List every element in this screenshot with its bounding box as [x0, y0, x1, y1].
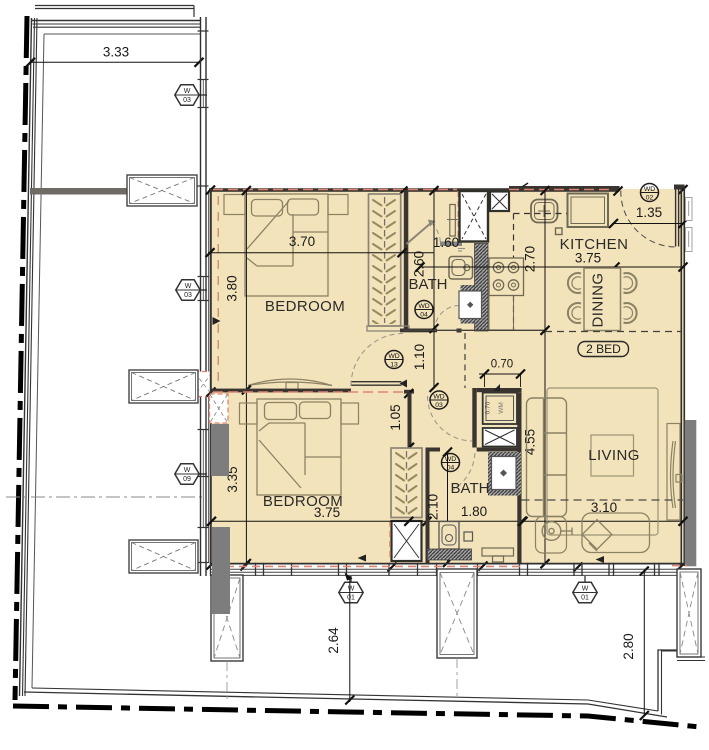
svg-text:3.70: 3.70	[289, 234, 315, 249]
svg-text:1.80: 1.80	[461, 504, 487, 519]
svg-text:02: 02	[646, 195, 654, 202]
svg-text:2 BED: 2 BED	[586, 342, 621, 356]
svg-text:1.10: 1.10	[412, 344, 427, 370]
svg-text:3.10: 3.10	[591, 500, 617, 515]
svg-text:WD: WD	[433, 393, 444, 400]
svg-text:WD: WD	[445, 456, 456, 463]
svg-text:1.05: 1.05	[388, 404, 403, 430]
svg-text:WD: WD	[418, 303, 429, 310]
svg-text:03: 03	[435, 402, 443, 409]
svg-text:01: 01	[347, 595, 355, 602]
svg-text:W: W	[185, 283, 192, 290]
svg-text:0.70: 0.70	[485, 401, 492, 414]
svg-text:W: W	[348, 585, 355, 592]
svg-text:0.70: 0.70	[491, 359, 513, 371]
svg-text:03: 03	[183, 97, 191, 104]
svg-text:WD: WD	[388, 353, 399, 360]
svg-text:W: W	[582, 585, 589, 592]
svg-text:13: 13	[390, 362, 398, 369]
svg-text:3.33: 3.33	[103, 45, 129, 60]
svg-text:04: 04	[420, 312, 428, 319]
svg-text:BATH: BATH	[451, 480, 490, 497]
svg-text:1.60: 1.60	[433, 235, 459, 250]
svg-text:1.35: 1.35	[636, 205, 662, 220]
svg-text:2.64: 2.64	[326, 627, 341, 654]
svg-text:2.80: 2.80	[621, 633, 636, 659]
svg-text:4.55: 4.55	[523, 429, 538, 455]
svg-text:2.70: 2.70	[523, 246, 538, 272]
svg-text:W: W	[184, 467, 191, 474]
svg-text:WD: WD	[644, 186, 655, 193]
svg-text:BATH: BATH	[409, 276, 448, 293]
svg-text:03: 03	[184, 292, 192, 299]
svg-text:WM: WM	[498, 402, 505, 414]
svg-text:LIVING: LIVING	[588, 447, 640, 464]
svg-text:01: 01	[581, 595, 589, 602]
svg-text:BEDROOM: BEDROOM	[265, 298, 345, 315]
svg-text:DINING: DINING	[590, 273, 607, 328]
svg-text:W: W	[184, 88, 191, 95]
svg-text:3.75: 3.75	[314, 505, 340, 520]
svg-text:09: 09	[183, 476, 191, 483]
svg-text:3.75: 3.75	[575, 251, 601, 266]
svg-text:3.80: 3.80	[225, 275, 240, 301]
svg-text:2.10: 2.10	[426, 494, 441, 520]
